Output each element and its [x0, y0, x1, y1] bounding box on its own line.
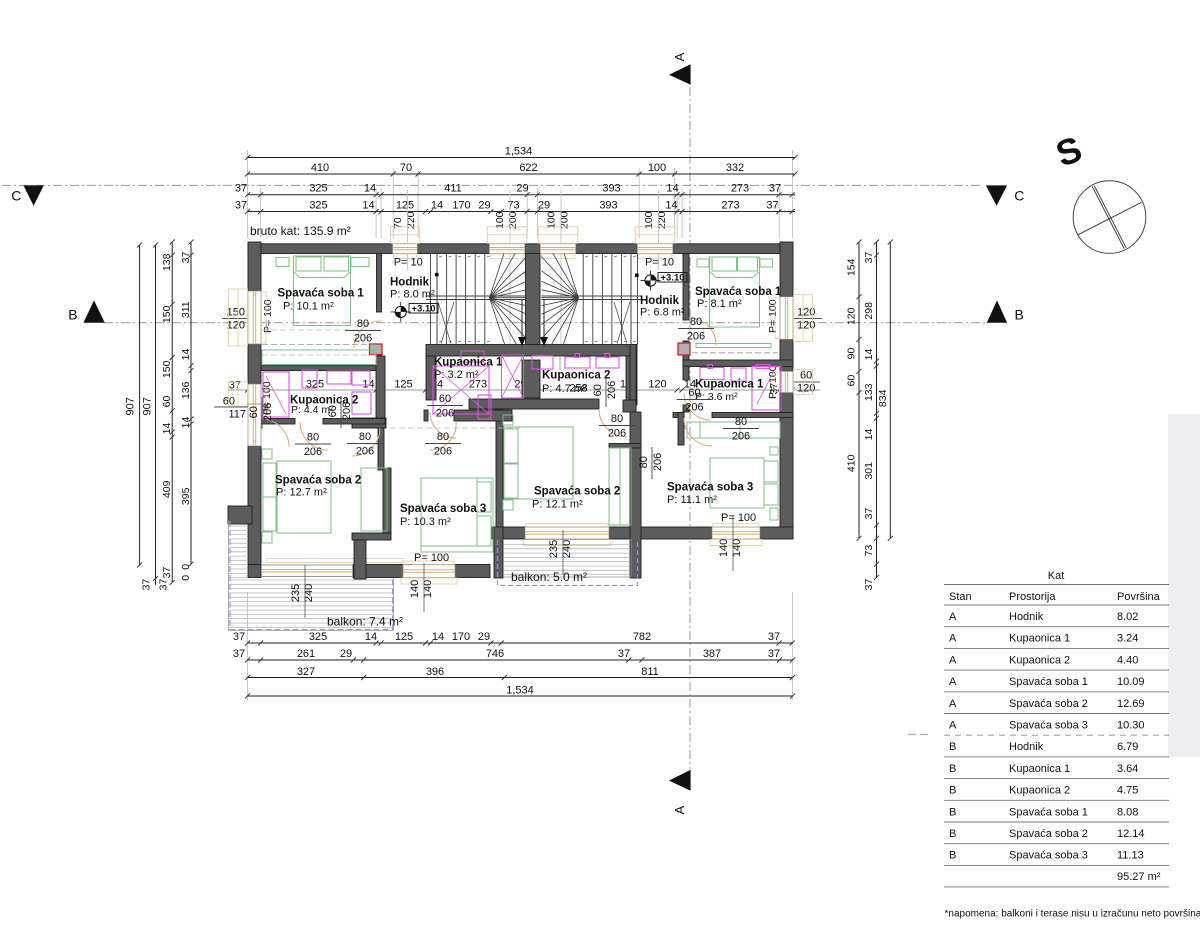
svg-text:117: 117: [228, 409, 246, 421]
svg-text:410: 410: [311, 162, 329, 174]
svg-text:14: 14: [161, 423, 173, 435]
svg-text:B: B: [949, 828, 956, 840]
svg-text:Kupaonica 1: Kupaonica 1: [434, 357, 503, 369]
svg-text:P= 10: P= 10: [394, 257, 423, 269]
svg-text:14: 14: [431, 200, 443, 212]
svg-text:37: 37: [158, 579, 170, 591]
svg-text:37: 37: [141, 579, 153, 591]
svg-text:120: 120: [648, 379, 666, 391]
svg-text:Kupaonica 2: Kupaonica 2: [1009, 785, 1070, 797]
svg-text:14: 14: [365, 631, 377, 643]
svg-text:273: 273: [731, 183, 749, 195]
svg-text:60: 60: [327, 405, 339, 417]
svg-text:301: 301: [863, 462, 875, 480]
svg-text:A: A: [949, 654, 957, 666]
svg-text:235: 235: [290, 584, 302, 602]
svg-text:37: 37: [768, 631, 780, 643]
svg-text:1,534: 1,534: [506, 685, 534, 697]
svg-text:37: 37: [863, 252, 875, 264]
svg-text:Hodnik: Hodnik: [640, 295, 680, 307]
svg-text:P: 6.8 m²: P: 6.8 m²: [640, 307, 685, 319]
svg-text:P= 100: P= 100: [767, 299, 779, 333]
svg-text:60: 60: [688, 387, 700, 399]
svg-text:782: 782: [633, 631, 651, 643]
svg-text:60: 60: [161, 396, 173, 408]
svg-text:220: 220: [656, 211, 668, 229]
svg-text:90: 90: [846, 348, 858, 360]
svg-text:B: B: [949, 785, 956, 797]
svg-text:37: 37: [618, 648, 630, 660]
svg-text:Stan: Stan: [949, 591, 972, 603]
svg-text:206: 206: [436, 408, 454, 420]
svg-text:A: A: [949, 720, 957, 732]
svg-text:+3.10: +3.10: [411, 304, 435, 315]
svg-text:B: B: [949, 850, 956, 862]
svg-text:bruto kat: 135.9 m²: bruto kat: 135.9 m²: [250, 224, 351, 238]
svg-text:P= 100: P= 100: [262, 299, 274, 333]
svg-text:Spavaća soba 1: Spavaća soba 1: [695, 286, 782, 298]
svg-text:100: 100: [546, 211, 558, 229]
svg-text:Spavaća soba 1: Spavaća soba 1: [1009, 676, 1088, 688]
svg-text:B: B: [68, 307, 77, 323]
svg-text:120: 120: [846, 307, 858, 325]
svg-text:393: 393: [599, 200, 617, 212]
svg-text:A: A: [949, 676, 957, 688]
svg-text:325: 325: [309, 631, 327, 643]
svg-text:C: C: [11, 188, 21, 204]
svg-text:298: 298: [863, 302, 875, 320]
svg-text:154: 154: [846, 258, 858, 276]
svg-text:11.13: 11.13: [1117, 850, 1144, 862]
svg-text:14: 14: [863, 349, 875, 361]
svg-text:0: 0: [180, 575, 192, 581]
svg-text:80: 80: [357, 318, 369, 330]
svg-text:Spavaća soba 2: Spavaća soba 2: [1009, 828, 1088, 840]
svg-text:C: C: [1014, 188, 1024, 204]
svg-text:200: 200: [559, 211, 571, 229]
svg-text:37: 37: [161, 567, 173, 579]
svg-text:37: 37: [235, 183, 247, 195]
svg-text:60: 60: [248, 406, 260, 418]
svg-text:Hodnik: Hodnik: [390, 277, 430, 289]
svg-text:14: 14: [362, 200, 374, 212]
svg-text:P= 100: P= 100: [721, 512, 756, 524]
svg-text:395: 395: [180, 487, 192, 505]
svg-text:Spavaća soba 2: Spavaća soba 2: [1009, 698, 1088, 710]
svg-text:Spavaća soba 3: Spavaća soba 3: [667, 482, 753, 494]
svg-text:Spavaća soba 3: Spavaća soba 3: [1009, 720, 1088, 732]
svg-text:206: 206: [341, 402, 353, 420]
svg-text:P: 8.0 m²: P: 8.0 m²: [390, 289, 435, 301]
svg-text:B: B: [949, 763, 956, 775]
svg-text:37: 37: [235, 200, 247, 212]
svg-text:80: 80: [611, 413, 623, 425]
svg-text:206: 206: [652, 453, 664, 471]
svg-text:12.69: 12.69: [1117, 698, 1145, 710]
svg-text:170: 170: [452, 200, 470, 212]
svg-text:Spavaća soba 2: Spavaća soba 2: [275, 475, 361, 487]
svg-text:60: 60: [846, 375, 858, 387]
svg-text:80: 80: [735, 416, 747, 428]
svg-text:206: 206: [356, 446, 374, 458]
svg-text:200: 200: [507, 211, 519, 229]
svg-text:Kupaonica 1: Kupaonica 1: [695, 379, 764, 391]
svg-text:Kupaonica 2: Kupaonica 2: [542, 370, 610, 382]
svg-text:235: 235: [548, 540, 560, 558]
svg-text:100: 100: [643, 211, 655, 229]
svg-text:80: 80: [638, 456, 650, 468]
svg-text:325: 325: [309, 183, 327, 195]
svg-text:746: 746: [486, 648, 504, 660]
svg-text:14: 14: [364, 183, 376, 195]
svg-text:1,534: 1,534: [505, 146, 533, 158]
svg-text:12.14: 12.14: [1117, 828, 1145, 840]
svg-text:37: 37: [180, 252, 192, 264]
svg-text:622: 622: [519, 162, 537, 174]
svg-text:A: A: [949, 633, 957, 645]
svg-text:150: 150: [227, 307, 245, 319]
svg-text:138: 138: [161, 253, 173, 271]
svg-text:P: 11.1 m²: P: 11.1 m²: [667, 494, 717, 506]
svg-text:325: 325: [306, 379, 324, 391]
svg-text:B: B: [1015, 307, 1024, 323]
svg-text:80: 80: [359, 431, 371, 443]
svg-text:29: 29: [516, 183, 528, 195]
svg-text:206: 206: [304, 446, 322, 458]
svg-text:A: A: [949, 611, 957, 623]
svg-text:P: 10.1 m²: P: 10.1 m²: [283, 301, 334, 313]
svg-text:Kupaonica 2: Kupaonica 2: [1009, 654, 1070, 666]
svg-text:10.09: 10.09: [1117, 676, 1145, 688]
svg-text:261: 261: [297, 648, 315, 660]
svg-text:A: A: [672, 805, 687, 814]
svg-text:Prostorija: Prostorija: [1009, 591, 1056, 603]
svg-text:29: 29: [478, 631, 490, 643]
svg-text:8.02: 8.02: [1117, 611, 1138, 623]
svg-text:37: 37: [769, 183, 781, 195]
svg-text:10.30: 10.30: [1117, 720, 1145, 732]
svg-text:100: 100: [494, 211, 506, 229]
svg-text:907: 907: [125, 397, 137, 415]
svg-text:311: 311: [180, 301, 192, 318]
svg-text:834: 834: [877, 389, 889, 407]
svg-text:80: 80: [690, 316, 702, 328]
svg-text:70: 70: [400, 162, 412, 174]
svg-text:8.08: 8.08: [1117, 806, 1138, 818]
svg-text:396: 396: [426, 666, 444, 678]
svg-text:Spavaća soba 3: Spavaća soba 3: [400, 503, 486, 515]
svg-text:120: 120: [227, 320, 245, 332]
svg-text:Hodnik: Hodnik: [1009, 611, 1044, 623]
svg-text:206: 206: [606, 381, 618, 399]
svg-text:14: 14: [666, 183, 678, 195]
svg-text:206: 206: [262, 403, 274, 421]
svg-text:Kupaonica 1: Kupaonica 1: [1009, 763, 1070, 775]
svg-text:150: 150: [161, 305, 173, 323]
svg-text:140: 140: [409, 580, 421, 598]
svg-text:60: 60: [439, 393, 451, 405]
svg-text:Spavaća soba 1: Spavaća soba 1: [1009, 806, 1088, 818]
svg-text:29: 29: [538, 200, 550, 212]
svg-text:206: 206: [608, 428, 626, 440]
svg-text:P: 10.3 m²: P: 10.3 m²: [400, 516, 451, 528]
svg-text:3.64: 3.64: [1117, 763, 1138, 775]
svg-text:4.75: 4.75: [1117, 785, 1138, 797]
svg-text:37: 37: [768, 648, 780, 660]
svg-text:balkon: 7.4 m²: balkon: 7.4 m²: [327, 615, 403, 629]
svg-text:125: 125: [396, 200, 414, 212]
svg-text:Spavaća soba 3: Spavaća soba 3: [1009, 850, 1088, 862]
svg-text:P= 10: P= 10: [645, 257, 674, 269]
svg-text:73: 73: [507, 200, 519, 212]
svg-text:125: 125: [395, 631, 413, 643]
svg-text:206: 206: [685, 402, 703, 414]
svg-text:136: 136: [180, 381, 192, 399]
svg-text:37: 37: [768, 383, 780, 395]
svg-text:P= 100: P= 100: [414, 552, 449, 564]
svg-text:3.24: 3.24: [1117, 633, 1138, 645]
svg-text:Spavaća soba 2: Spavaća soba 2: [534, 486, 620, 498]
svg-text:Površina: Površina: [1117, 591, 1161, 603]
svg-text:6.79: 6.79: [1117, 741, 1138, 753]
svg-text:37: 37: [233, 648, 245, 660]
svg-text:4.40: 4.40: [1117, 654, 1138, 666]
svg-text:206: 206: [687, 331, 705, 343]
svg-text:P: 3.2 m²: P: 3.2 m²: [434, 369, 479, 381]
svg-text:B: B: [949, 741, 956, 753]
svg-text:170: 170: [452, 631, 470, 643]
svg-text:14: 14: [863, 429, 875, 441]
svg-text:P: 4.7 m²: P: 4.7 m²: [542, 383, 587, 395]
svg-text:220: 220: [405, 211, 417, 229]
svg-text:140: 140: [718, 539, 730, 557]
svg-text:balkon: 5.0 m²: balkon: 5.0 m²: [511, 570, 587, 584]
svg-text:206: 206: [434, 446, 452, 458]
svg-text:14: 14: [665, 200, 677, 212]
svg-text:410: 410: [846, 454, 858, 472]
svg-text:+3.10: +3.10: [660, 273, 684, 284]
svg-text:29: 29: [340, 648, 352, 660]
svg-text:393: 393: [602, 183, 620, 195]
svg-text:P: 12.1 m²: P: 12.1 m²: [532, 499, 583, 511]
svg-text:Kat: Kat: [1048, 570, 1065, 582]
svg-text:14: 14: [432, 631, 444, 643]
svg-text:60: 60: [800, 370, 812, 382]
svg-text:73: 73: [863, 545, 875, 557]
svg-text:A: A: [949, 698, 957, 710]
svg-text:100: 100: [648, 162, 666, 174]
svg-text:60: 60: [592, 384, 604, 396]
svg-text:387: 387: [703, 648, 721, 660]
svg-text:37: 37: [863, 508, 875, 520]
svg-text:409: 409: [161, 480, 173, 498]
svg-text:*napomena: balkoni i terase ni: *napomena: balkoni i terase nisu u izrač…: [945, 909, 1200, 920]
svg-text:325: 325: [309, 200, 327, 212]
svg-text:Hodnik: Hodnik: [1009, 741, 1044, 753]
svg-text:14: 14: [180, 417, 192, 429]
svg-text:273: 273: [721, 200, 739, 212]
svg-text:29: 29: [478, 200, 490, 212]
svg-text:206: 206: [732, 431, 750, 443]
svg-text:37: 37: [766, 200, 778, 212]
svg-text:95.27 m²: 95.27 m²: [1117, 871, 1161, 883]
svg-text:P: 12.7 m²: P: 12.7 m²: [276, 487, 327, 499]
svg-text:411: 411: [444, 183, 462, 195]
svg-text:37: 37: [233, 631, 245, 643]
svg-text:B: B: [949, 806, 956, 818]
svg-text:125: 125: [394, 379, 412, 391]
svg-text:14: 14: [180, 349, 192, 361]
svg-text:P: 8.1 m²: P: 8.1 m²: [697, 298, 742, 310]
svg-text:A: A: [672, 52, 687, 61]
svg-text:Spavaća soba 1: Spavaća soba 1: [278, 288, 365, 300]
svg-text:206: 206: [354, 333, 372, 345]
svg-text:Kupaonica 1: Kupaonica 1: [1009, 633, 1070, 645]
svg-text:332: 332: [726, 162, 744, 174]
svg-text:133: 133: [863, 383, 875, 401]
svg-text:327: 327: [297, 666, 315, 678]
svg-text:907: 907: [142, 397, 154, 415]
svg-text:80: 80: [437, 431, 449, 443]
svg-text:150: 150: [161, 360, 173, 378]
svg-text:0: 0: [180, 564, 192, 570]
svg-text:811: 811: [641, 666, 659, 678]
svg-text:37: 37: [863, 579, 875, 591]
svg-text:80: 80: [307, 432, 319, 444]
